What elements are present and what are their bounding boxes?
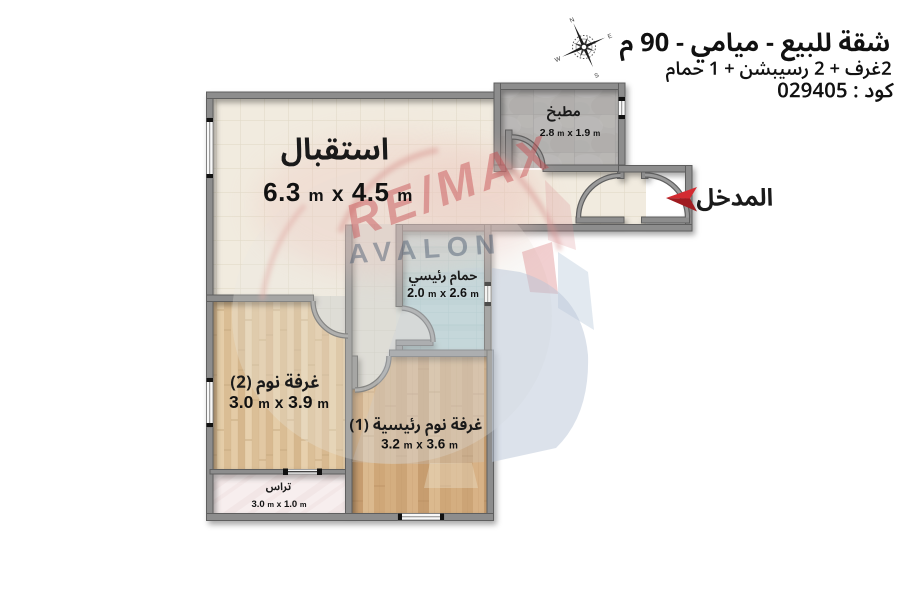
svg-text:2.0 m x 2.6 m: 2.0 m x 2.6 m [407,286,479,300]
svg-text:3.0 m x 1.0 m: 3.0 m x 1.0 m [251,499,306,510]
svg-text:3.2 m x 3.6 m: 3.2 m x 3.6 m [381,437,458,452]
svg-text:2.8 m x 1.9 m: 2.8 m x 1.9 m [540,127,600,139]
svg-text:3.0 m x 3.9 m: 3.0 m x 3.9 m [229,392,329,412]
